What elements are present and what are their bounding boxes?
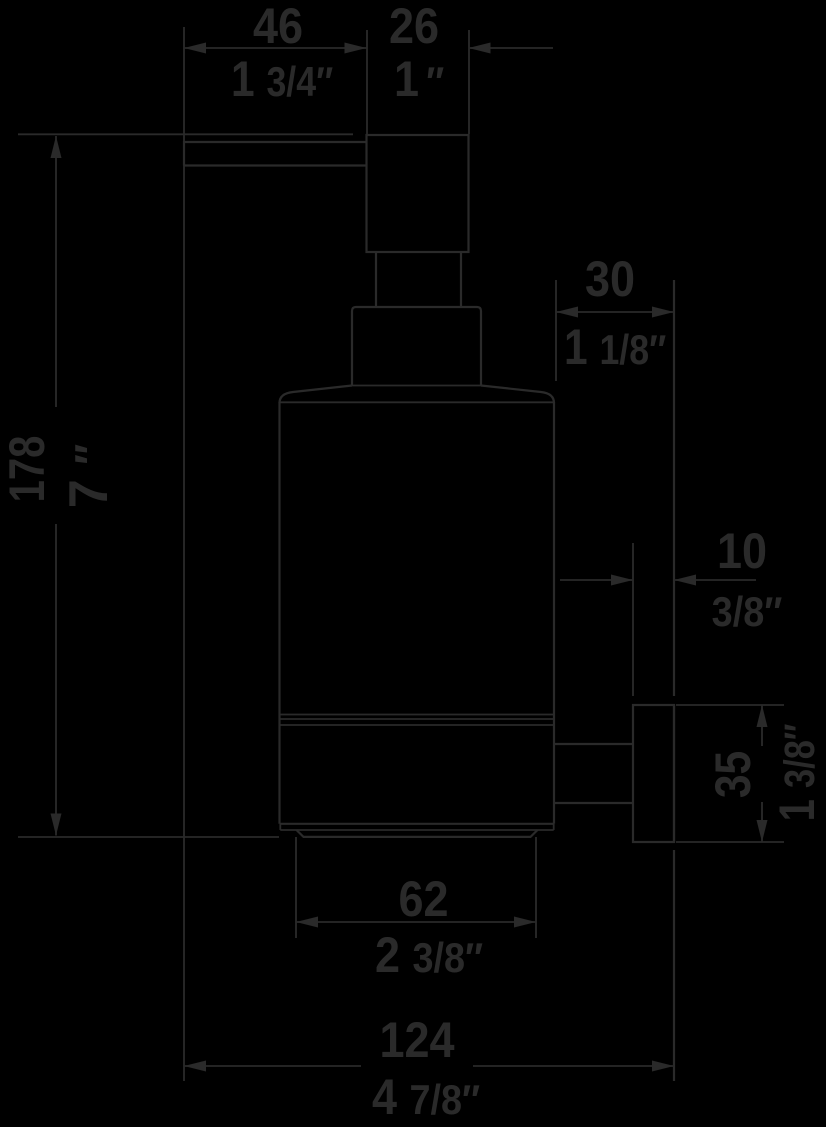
- svg-text:30: 30: [585, 252, 635, 308]
- svg-text:62: 62: [398, 872, 448, 928]
- svg-text:124: 124: [379, 1013, 455, 1069]
- svg-text:3/8″: 3/8″: [712, 589, 783, 635]
- svg-text:178: 178: [0, 436, 55, 503]
- svg-text:35: 35: [705, 751, 761, 798]
- svg-text:10: 10: [717, 524, 767, 580]
- svg-text:1 1/8″: 1 1/8″: [564, 319, 666, 375]
- svg-text:1 ″: 1 ″: [394, 52, 444, 108]
- svg-text:1 3/4″: 1 3/4″: [231, 51, 333, 107]
- svg-text:4 7/8″: 4 7/8″: [372, 1070, 480, 1126]
- svg-text:26: 26: [389, 0, 439, 55]
- svg-text:1 3/8″: 1 3/8″: [769, 724, 825, 822]
- svg-text:46: 46: [253, 0, 303, 55]
- svg-text:7 ″: 7 ″: [58, 444, 120, 509]
- svg-text:2 3/8″: 2 3/8″: [375, 928, 483, 984]
